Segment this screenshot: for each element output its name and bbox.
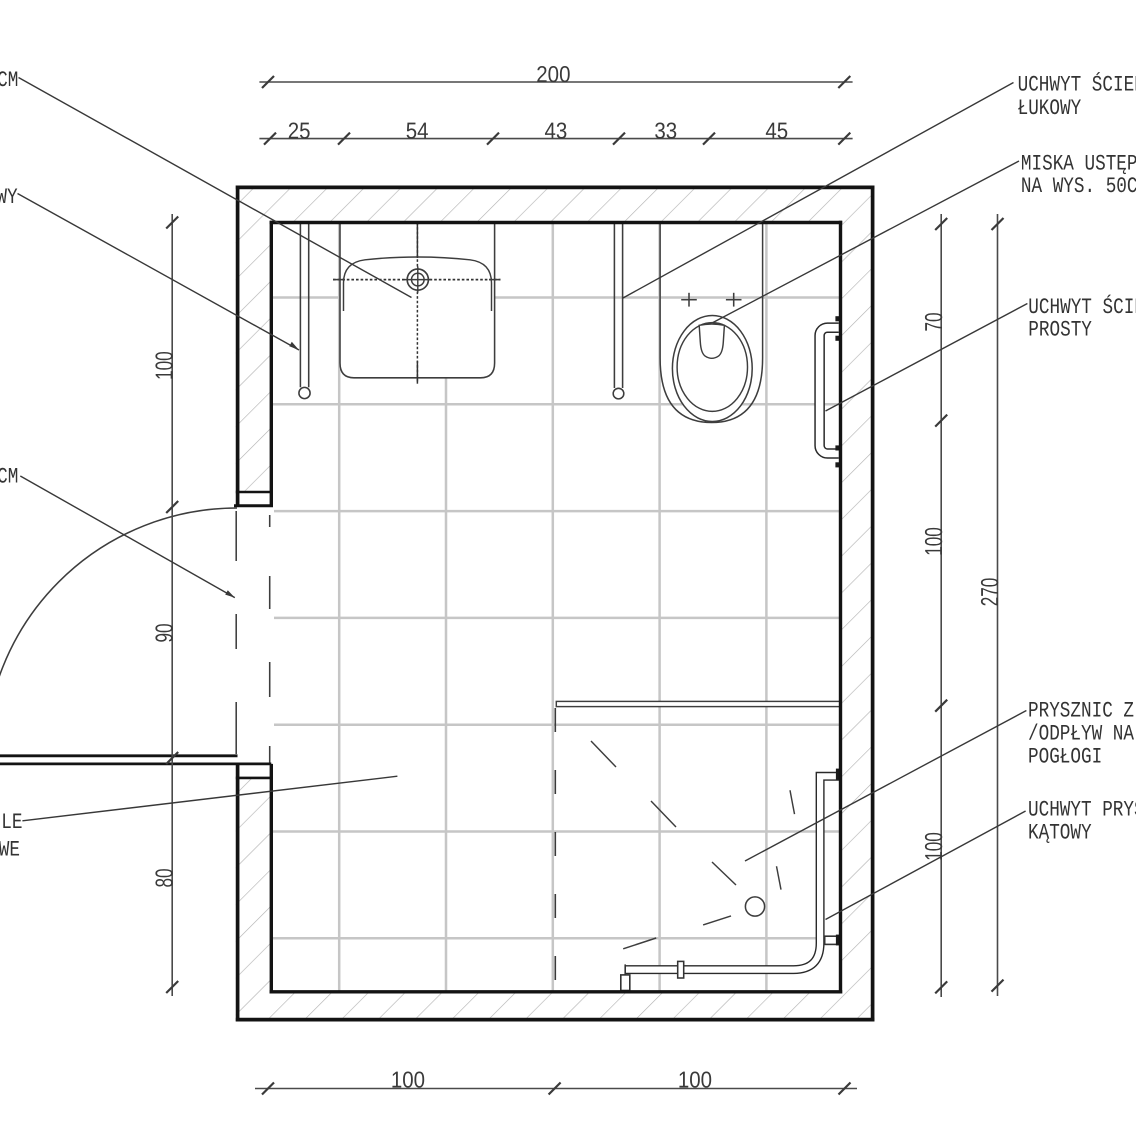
- svg-text:NA WYS. 50CM: NA WYS. 50CM: [1021, 174, 1136, 199]
- svg-text:UCHWYT ŚCIENNY: UCHWYT ŚCIENNY: [1018, 71, 1136, 97]
- svg-text:45: 45: [765, 117, 788, 143]
- svg-text:100: 100: [678, 1066, 712, 1092]
- svg-text:MISKA USTĘPOWA: MISKA USTĘPOWA: [1021, 151, 1136, 176]
- svg-text:54: 54: [406, 117, 429, 143]
- svg-text:200: 200: [536, 61, 570, 87]
- svg-text:33: 33: [654, 117, 677, 143]
- svg-text:WY: WY: [0, 185, 18, 210]
- svg-text:100: 100: [391, 1066, 425, 1092]
- svg-text:UCHWYT PRYSZNICOWY: UCHWYT PRYSZNICOWY: [1028, 797, 1136, 822]
- svg-text:100: 100: [152, 351, 179, 380]
- svg-text:PRYSZNIC Z: PRYSZNIC Z: [1028, 698, 1134, 723]
- svg-text:LE: LE: [1, 810, 22, 835]
- svg-text:KĄTOWY: KĄTOWY: [1028, 821, 1092, 846]
- svg-text:/ODPŁYW NA: /ODPŁYW NA: [1028, 722, 1135, 747]
- svg-text:WE: WE: [0, 838, 20, 863]
- svg-text:25: 25: [288, 117, 311, 143]
- svg-text:43: 43: [545, 117, 568, 143]
- svg-text:UCHWYT ŚCIENNY: UCHWYT ŚCIENNY: [1028, 294, 1136, 320]
- svg-text:70: 70: [921, 312, 948, 331]
- svg-text:CM: CM: [0, 68, 18, 93]
- svg-text:90: 90: [152, 623, 179, 642]
- svg-text:100: 100: [921, 527, 948, 556]
- svg-text:POGŁOGI: POGŁOGI: [1028, 745, 1102, 770]
- svg-text:80: 80: [152, 868, 179, 887]
- svg-text:ŁUKOWY: ŁUKOWY: [1018, 96, 1082, 121]
- svg-text:CM: CM: [0, 464, 18, 489]
- svg-text:100: 100: [921, 832, 948, 861]
- svg-text:PROSTY: PROSTY: [1028, 317, 1092, 342]
- svg-text:270: 270: [977, 578, 1004, 607]
